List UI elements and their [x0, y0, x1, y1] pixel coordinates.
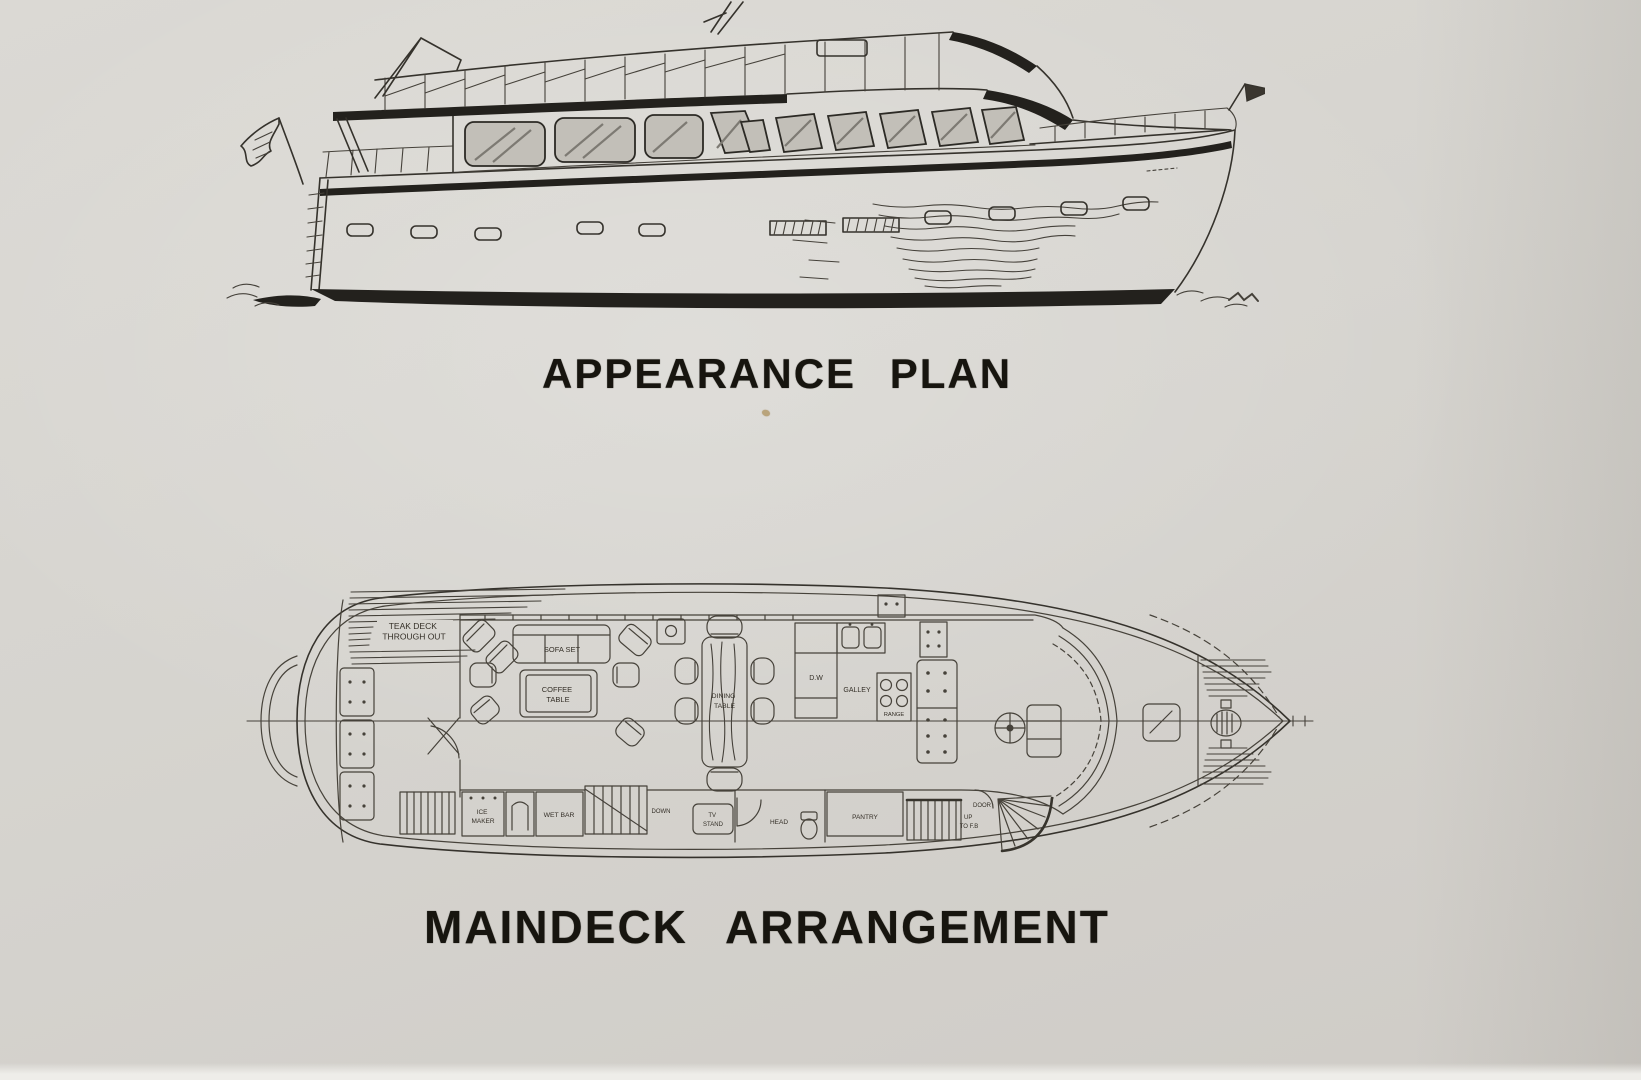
pantry-label: PANTRY [852, 814, 878, 821]
spiral-stairs [998, 796, 1052, 851]
bar-locker [506, 792, 534, 836]
galley-cabinets [878, 595, 947, 657]
stairs-down: DOWN [585, 786, 671, 834]
scanned-brochure-page: { "document": { "kind": "scanned yacht b… [0, 0, 1641, 1080]
tv-stand-label: TV STAND [703, 813, 724, 828]
aft-deck-railing-icon [323, 146, 453, 177]
tv-stand: TV STAND [693, 804, 733, 834]
sofa-set-label: SOFA SET [544, 645, 581, 654]
dining-table: DINING TABLE [702, 637, 747, 767]
door-label: DOOR [973, 803, 992, 809]
ice-maker-label: ICE MAKER [471, 809, 494, 825]
refrigerator-icon [917, 660, 957, 763]
bow-flag-icon [1229, 84, 1265, 110]
porthole-icon [925, 197, 1149, 224]
dishwasher-label: D.W [809, 675, 823, 682]
wet-bar-label: WET BAR [544, 812, 575, 819]
aft-deck-steps [400, 792, 455, 834]
pilothouse-windows-icon [741, 107, 1024, 152]
coffee-table-label: COFFEE TABLE [542, 685, 575, 704]
maindeck-arrangement-title: MAINDECK ARRANGEMENT [424, 900, 1110, 954]
engine-vent-icon [770, 218, 899, 235]
range-label: RANGE [884, 712, 905, 718]
teak-deck-label: TEAK DECK THROUGH OUT [382, 621, 445, 642]
davit-mast-icon [375, 38, 461, 98]
porthole-icon [347, 222, 665, 240]
helm-console [1027, 705, 1061, 757]
wet-bar: WET BAR [536, 792, 583, 836]
galley-label: GALLEY [843, 687, 871, 694]
transom-lockers [340, 668, 374, 820]
end-table [657, 619, 685, 644]
stern-flag-icon [241, 118, 303, 184]
stairs-up: UP TO F.B DOOR [907, 790, 993, 840]
aft-deck-teak: TEAK DECK THROUGH OUT [349, 589, 565, 664]
stairs-down-label: DOWN [652, 809, 671, 815]
head-compartment: HEAD [735, 790, 825, 842]
salon-windows-icon [465, 111, 761, 166]
deck-hatch-icon [1143, 704, 1180, 741]
scan-edge [0, 1063, 1641, 1080]
antenna-mast-icon [704, 2, 743, 34]
maindeck-arrangement-drawing: TEAK DECK THROUGH OUT SOFA SET [245, 558, 1320, 863]
coffee-table: COFFEE TABLE [520, 670, 597, 717]
centerline [247, 716, 1313, 726]
appearance-plan-drawing [225, 0, 1265, 315]
toilet-icon [801, 812, 817, 839]
galley-sinks [837, 623, 885, 653]
anchor-windlass-icon [1211, 700, 1241, 748]
sofa-set: SOFA SET [461, 618, 654, 676]
hull-profile [253, 130, 1235, 308]
helm-station [995, 705, 1061, 757]
appearance-plan-title: APPEARANCE PLAN [542, 350, 1012, 398]
salon-armchairs [468, 663, 647, 749]
pantry: PANTRY [827, 792, 903, 836]
head-label: HEAD [770, 819, 788, 826]
ice-maker: ICE MAKER [462, 792, 504, 836]
paper-speck [761, 409, 771, 417]
stairs-up-label: UP TO F.B [960, 815, 979, 830]
range-icon: RANGE [877, 673, 911, 721]
hull-shading [793, 202, 1158, 288]
salon-door-swing [428, 718, 459, 758]
